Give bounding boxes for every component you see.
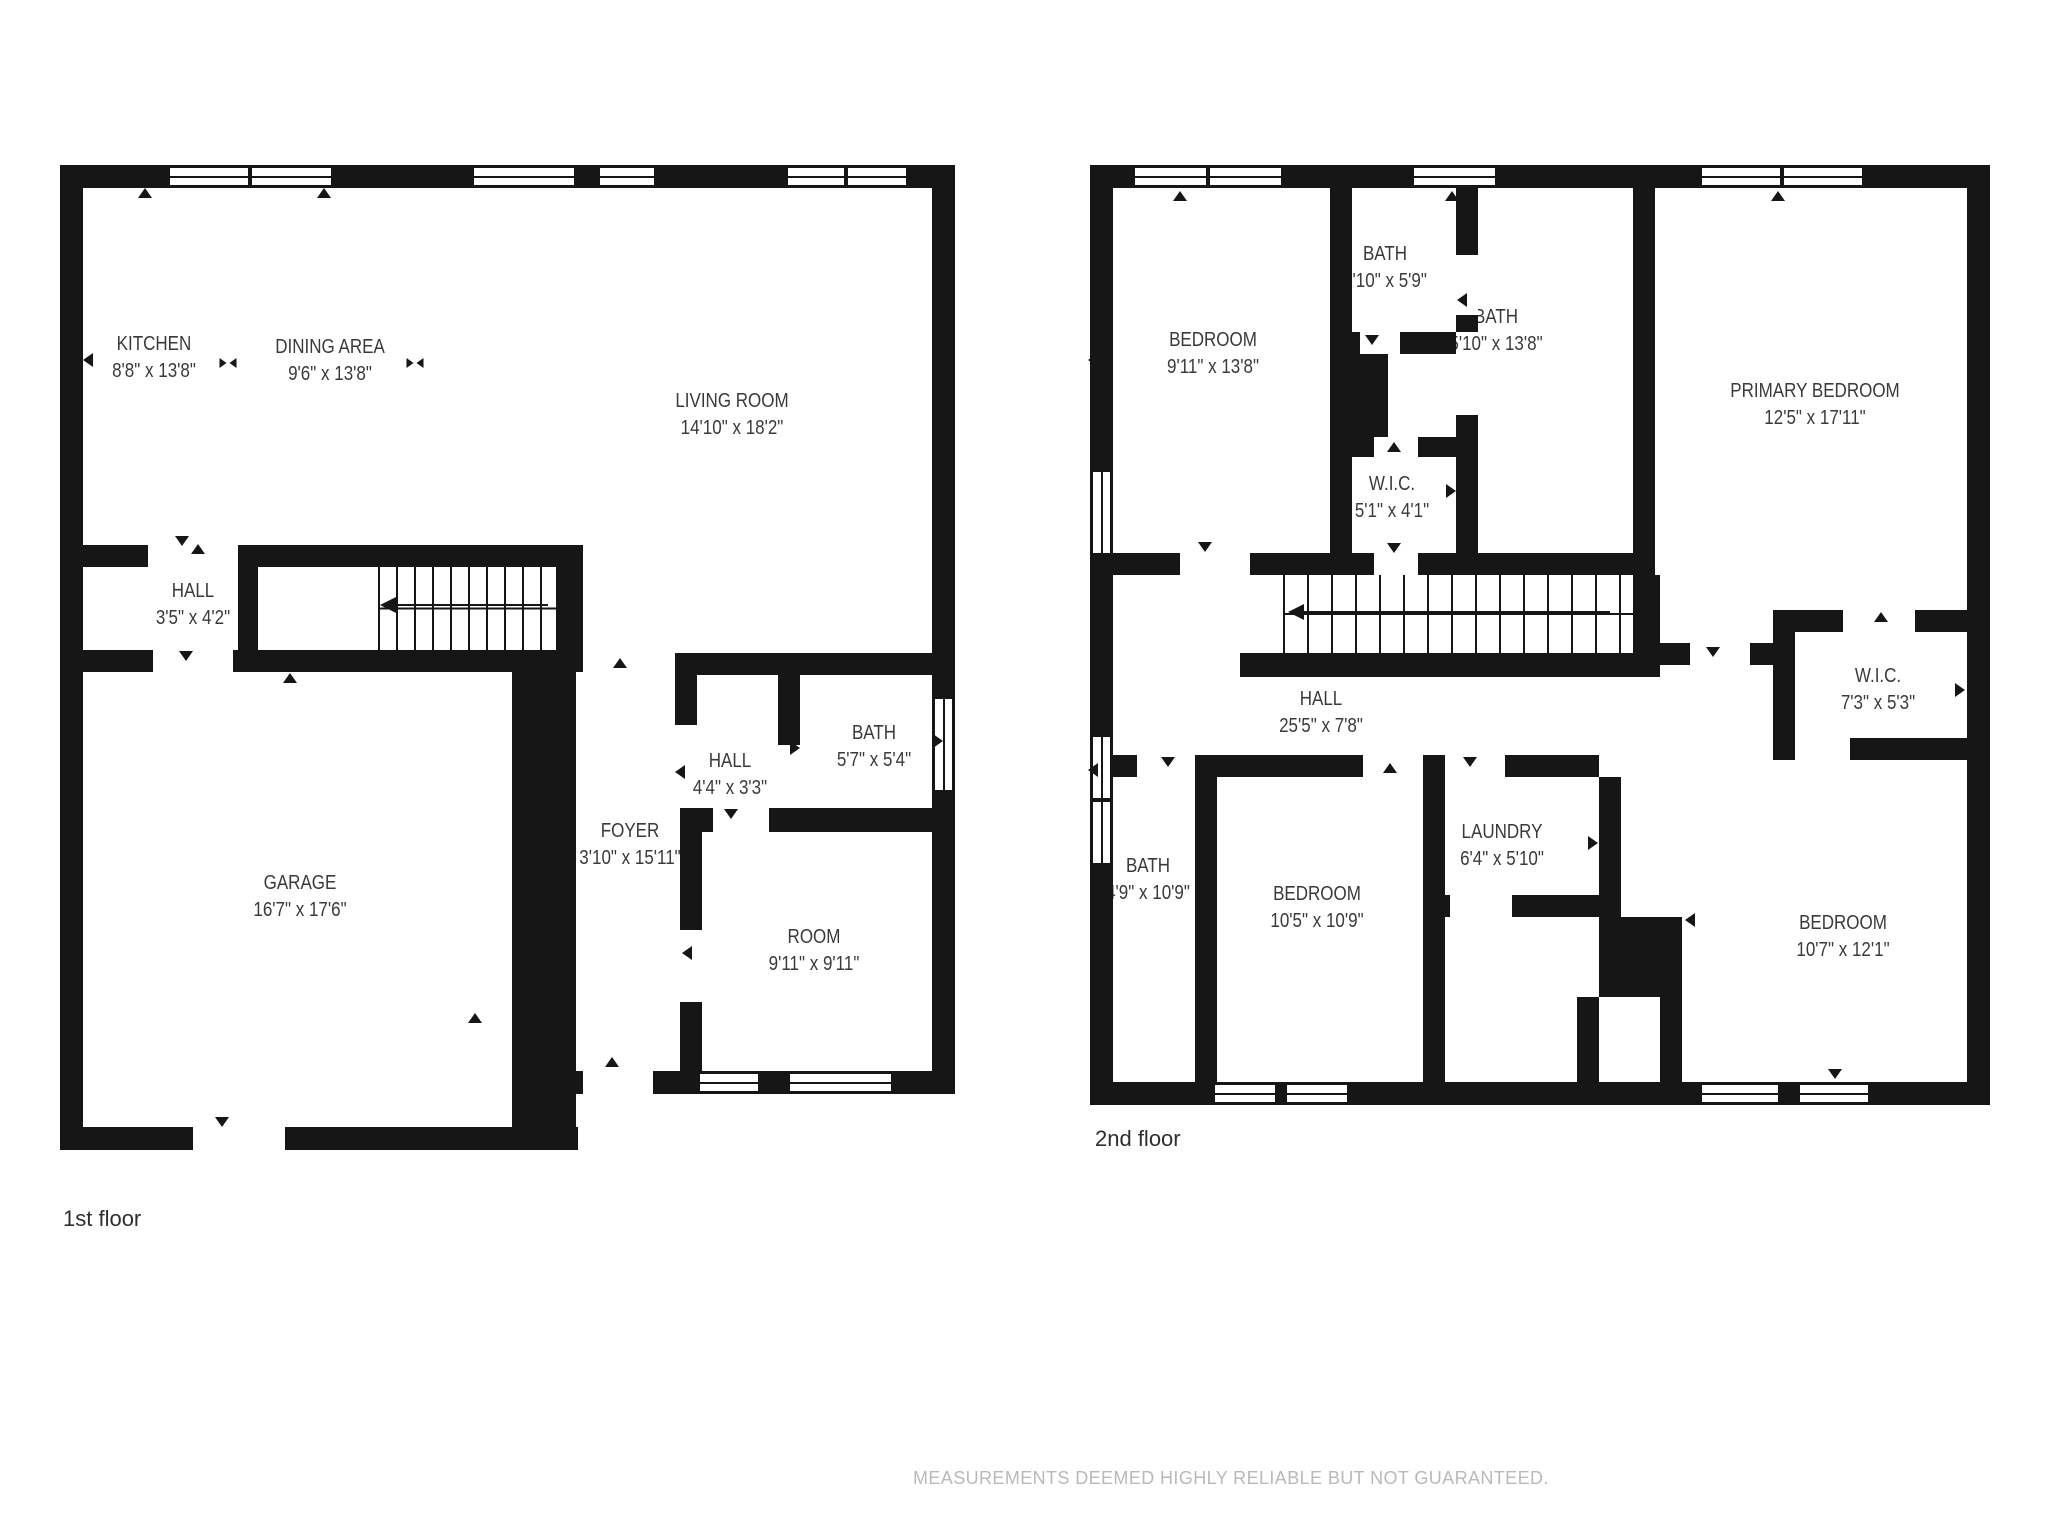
stair-arrow-icon — [380, 597, 396, 613]
door-opening — [583, 1071, 653, 1094]
room-dimensions: 12'5" x 17'11" — [1730, 405, 1899, 432]
door-marker-icon — [1446, 484, 1456, 498]
room-dimensions: 8'8" x 13'8" — [112, 358, 196, 385]
window — [788, 1071, 893, 1094]
room-name: FOYER — [579, 818, 680, 845]
room-name: LAUNDRY — [1460, 819, 1544, 846]
door-marker-icon — [933, 734, 943, 748]
room-dimensions: 3'10" x 15'11" — [579, 845, 680, 872]
door-marker-icon — [138, 188, 152, 198]
stair-arrow-icon — [1300, 611, 1610, 613]
door-marker-icon — [1583, 555, 1597, 565]
room-label-bedroom-2: BEDROOM 10'5" x 10'9" — [1270, 881, 1363, 935]
door-marker-icon — [1387, 442, 1401, 452]
door-marker-icon — [682, 946, 692, 960]
room-dimensions: 7'3" x 5'3" — [1841, 690, 1915, 717]
door-marker-icon — [1365, 335, 1379, 345]
room-name: W.I.C. — [1355, 471, 1429, 498]
door-marker-icon — [1161, 757, 1175, 767]
door-opening — [680, 930, 702, 1002]
room-dimensions: 9'6" x 13'8" — [275, 361, 385, 388]
wall — [675, 675, 697, 725]
door-marker-icon — [1336, 484, 1346, 498]
room-name: KITCHEN — [112, 331, 196, 358]
door-marker-icon — [1970, 388, 1980, 402]
room-label-room: ROOM 9'11" x 9'11" — [769, 924, 860, 978]
wall — [1505, 755, 1599, 777]
window — [1700, 1082, 1780, 1105]
wall — [1967, 165, 1990, 1105]
door-marker-icon — [1445, 191, 1459, 201]
door-marker-icon — [283, 673, 297, 683]
wall — [556, 545, 583, 672]
door-opening — [1450, 895, 1512, 917]
wall — [1599, 917, 1682, 997]
wall — [60, 650, 578, 672]
window — [1782, 165, 1864, 188]
room-dimensions: 10'5" x 10'9" — [1270, 908, 1363, 935]
room-dimensions: 4'9" x 10'9" — [1106, 880, 1190, 907]
wall — [60, 545, 578, 567]
door-opening — [1374, 553, 1418, 575]
room-name: HALL — [693, 748, 767, 775]
door-marker-icon — [1198, 542, 1212, 552]
door-marker-icon — [1173, 191, 1187, 201]
room-label-bath-small: BATH 3'10" x 5'9" — [1343, 241, 1427, 295]
room-label-dining-area: DINING AREA 9'6" x 13'8" — [275, 334, 385, 388]
room-label-bedroom-3: BEDROOM 10'7" x 12'1" — [1796, 910, 1889, 964]
door-marker-icon — [935, 359, 945, 373]
door-marker-icon — [1387, 543, 1401, 553]
measurements-disclaimer: MEASUREMENTS DEEMED HIGHLY RELIABLE BUT … — [913, 1468, 1549, 1489]
window — [1133, 165, 1208, 188]
floor-caption-1st: 1st floor — [63, 1206, 141, 1232]
door-marker-icon — [1780, 683, 1790, 697]
wall — [1423, 777, 1445, 1082]
wall — [932, 165, 955, 1094]
door-marker-icon — [1874, 612, 1888, 622]
wall — [1090, 165, 1113, 1105]
door-marker-icon — [468, 1013, 482, 1023]
stair-arrow-icon — [392, 604, 548, 606]
door-marker-icon — [1088, 353, 1098, 367]
door-marker-icon — [191, 544, 205, 554]
open-plan-marker-icon — [407, 358, 424, 368]
room-label-living-room: LIVING ROOM 14'10" x 18'2" — [675, 388, 788, 442]
window — [1213, 1082, 1277, 1105]
door-marker-icon — [1463, 757, 1477, 767]
room-name: GARAGE — [253, 870, 346, 897]
room-dimensions: 14'10" x 18'2" — [675, 415, 788, 442]
wall — [238, 567, 258, 650]
door-marker-icon — [790, 741, 800, 755]
room-label-primary-bedroom: PRIMARY BEDROOM 12'5" x 17'11" — [1730, 378, 1899, 432]
wall — [1423, 755, 1445, 777]
wall — [1577, 997, 1599, 1082]
room-name: BEDROOM — [1270, 881, 1363, 908]
door-marker-icon — [1685, 913, 1695, 927]
room-dimensions: 3'10" x 5'9" — [1343, 268, 1427, 295]
room-name: BATH — [837, 720, 911, 747]
window — [1090, 470, 1113, 555]
door-marker-icon — [1457, 293, 1467, 307]
room-name: BATH — [1343, 241, 1427, 268]
stairs — [378, 567, 556, 650]
window — [1412, 165, 1497, 188]
door-marker-icon — [724, 809, 738, 819]
room-label-hall-foyer: HALL 4'4" x 3'3" — [693, 748, 767, 802]
open-plan-marker-icon — [407, 358, 414, 368]
room-dimensions: 10'7" x 12'1" — [1796, 937, 1889, 964]
door-marker-icon — [1706, 647, 1720, 657]
room-dimensions: 3'5" x 4'2" — [156, 605, 230, 632]
floor-caption-2nd: 2nd floor — [1095, 1126, 1181, 1152]
wall — [512, 672, 576, 1127]
door-opening — [193, 1127, 285, 1150]
room-name: ROOM — [769, 924, 860, 951]
wall — [1090, 553, 1655, 575]
room-label-bath-1f: BATH 5'7" x 5'4" — [837, 720, 911, 774]
open-plan-marker-icon — [220, 358, 237, 368]
window — [250, 165, 333, 188]
door-marker-icon — [613, 658, 627, 668]
window — [1700, 165, 1782, 188]
door-marker-icon — [675, 765, 685, 779]
room-name: BEDROOM — [1796, 910, 1889, 937]
wall — [1633, 188, 1655, 575]
room-name: DINING AREA — [275, 334, 385, 361]
room-label-laundry: LAUNDRY 6'4" x 5'10" — [1460, 819, 1544, 873]
window — [1090, 800, 1113, 865]
room-label-bath-2f: BATH 4'9" x 10'9" — [1106, 853, 1190, 907]
door-opening — [153, 650, 233, 672]
room-dimensions: 5'10" x 13'8" — [1449, 331, 1542, 358]
room-name: BEDROOM — [1167, 327, 1259, 354]
room-dimensions: 16'7" x 17'6" — [253, 897, 346, 924]
room-name: W.I.C. — [1841, 663, 1915, 690]
window — [472, 165, 576, 188]
open-plan-marker-icon — [417, 358, 424, 368]
room-label-hall-1f: HALL 3'5" x 4'2" — [156, 578, 230, 632]
window — [1208, 165, 1283, 188]
room-dimensions: 25'5" x 7'8" — [1279, 713, 1363, 740]
room-label-foyer: FOYER 3'10" x 15'11" — [579, 818, 680, 872]
room-label-wic-1: W.I.C. 5'1" x 4'1" — [1355, 471, 1429, 525]
window — [1798, 1082, 1870, 1105]
door-opening — [1180, 553, 1250, 575]
open-plan-marker-icon — [230, 358, 237, 368]
room-name: BATH — [1106, 853, 1190, 880]
door-opening — [713, 808, 769, 832]
door-marker-icon — [215, 1117, 229, 1127]
stairs — [1283, 575, 1633, 653]
room-label-bedroom-1: BEDROOM 9'11" x 13'8" — [1167, 327, 1259, 381]
wall — [1240, 653, 1660, 677]
wall — [1195, 755, 1363, 777]
floor-plan-image: KITCHEN 8'8" x 13'8" DINING AREA 9'6" x … — [0, 0, 2048, 1536]
door-marker-icon — [317, 188, 331, 198]
room-name: LIVING ROOM — [675, 388, 788, 415]
room-name: HALL — [156, 578, 230, 605]
room-label-kitchen: KITCHEN 8'8" x 13'8" — [112, 331, 196, 385]
wall — [60, 1127, 578, 1150]
room-label-wic-2: W.I.C. 7'3" x 5'3" — [1841, 663, 1915, 717]
room-dimensions: 9'11" x 9'11" — [769, 951, 860, 978]
window — [698, 1071, 760, 1094]
open-plan-marker-icon — [220, 358, 227, 368]
room-dimensions: 5'7" x 5'4" — [837, 747, 911, 774]
door-opening — [1795, 738, 1850, 760]
door-marker-icon — [175, 536, 189, 546]
door-marker-icon — [1088, 763, 1098, 777]
door-marker-icon — [1955, 683, 1965, 697]
wall — [1195, 777, 1217, 1082]
window — [846, 165, 908, 188]
door-marker-icon — [179, 651, 193, 661]
window — [168, 165, 250, 188]
room-name: HALL — [1279, 686, 1363, 713]
stair-arrow-icon — [1288, 604, 1304, 620]
room-dimensions: 9'11" x 13'8" — [1167, 354, 1259, 381]
room-dimensions: 5'1" x 4'1" — [1355, 498, 1429, 525]
door-marker-icon — [1383, 763, 1397, 773]
door-marker-icon — [605, 1057, 619, 1067]
door-marker-icon — [1588, 836, 1598, 850]
door-marker-icon — [83, 353, 93, 367]
room-label-hall-2f: HALL 25'5" x 7'8" — [1279, 686, 1363, 740]
wall — [1660, 997, 1682, 1082]
room-dimensions: 6'4" x 5'10" — [1460, 846, 1544, 873]
window — [598, 165, 656, 188]
window — [786, 165, 846, 188]
room-name: PRIMARY BEDROOM — [1730, 378, 1899, 405]
door-marker-icon — [1828, 1069, 1842, 1079]
room-dimensions: 4'4" x 3'3" — [693, 775, 767, 802]
wall — [675, 653, 955, 675]
door-opening — [1690, 643, 1750, 665]
window — [1285, 1082, 1349, 1105]
door-marker-icon — [1771, 191, 1785, 201]
wall — [1456, 415, 1478, 553]
wall — [778, 675, 800, 745]
room-label-garage: GARAGE 16'7" x 17'6" — [253, 870, 346, 924]
